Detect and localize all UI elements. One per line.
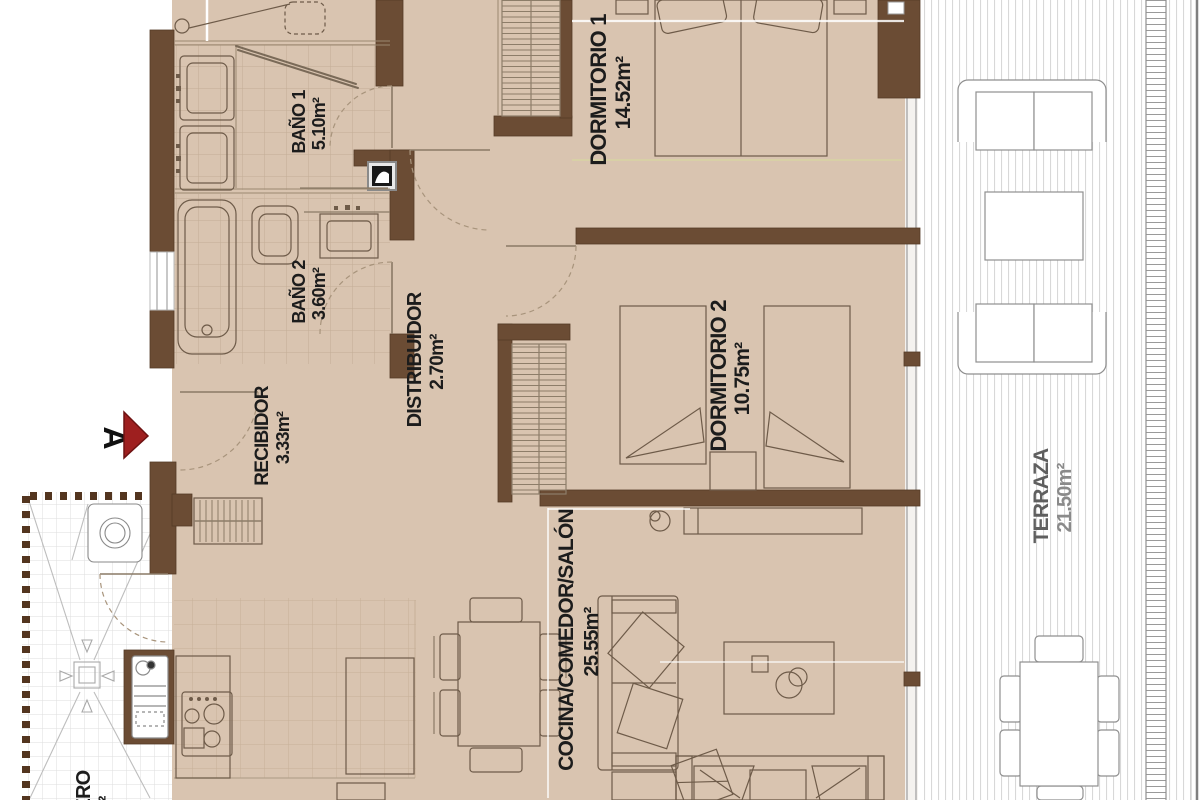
floor-plan-canvas: A BAÑO 1 5.10m² BAÑO 2 3.60m² DORMITORIO… (0, 0, 1200, 800)
window-mullion (904, 352, 920, 366)
terraza-table (985, 192, 1083, 260)
wardrobe1-wall-right (560, 0, 572, 118)
room-area-bano2: 3.60m² (309, 267, 329, 320)
bano1-tiles (174, 44, 390, 190)
room-label-dormitorio1: DORMITORIO 1 (586, 14, 611, 166)
wall-top-stub (376, 0, 403, 86)
room-area-recibidor: 3.33m² (273, 411, 293, 464)
window-left (150, 252, 174, 310)
kitchen-tiles (174, 598, 416, 778)
room-label-distribuidor: DISTRIBUIDOR (404, 291, 426, 427)
room-label-dormitorio2: DORMITORIO 2 (706, 300, 731, 452)
room-label-terraza: TERRAZA (1030, 448, 1053, 543)
wall-dorm1-dorm2 (576, 228, 920, 244)
wall-entry-column (172, 494, 192, 526)
room-label-lavadero: LAVADERO (73, 770, 95, 800)
wardrobe1-wall-bottom (494, 116, 572, 136)
room-area-distribuidor: 2.70m² (427, 334, 448, 390)
room-area-cocina: 25.55m² (581, 606, 603, 676)
wall-top-right-block (878, 0, 920, 98)
wardrobe2-wall-top (498, 324, 570, 340)
room-area-dormitorio1: 14.52m² (612, 56, 635, 129)
room-area-lavadero: 3.63m² (96, 796, 117, 800)
room-area-terraza: 21.50m² (1054, 462, 1076, 532)
wall-left-mid (150, 310, 174, 368)
room-area-bano1: 5.10m² (309, 97, 329, 150)
room-area-dormitorio2: 10.75m² (731, 342, 754, 415)
room-label-bano1: BAÑO 1 (288, 90, 309, 154)
room-label-recibidor: RECIBIDOR (252, 385, 273, 485)
wardrobe-dormitorio2 (512, 344, 566, 494)
section-arrow-icon (124, 412, 148, 458)
wardrobe2-wall-left (498, 324, 512, 502)
boiler-icon (132, 656, 168, 738)
terraza-sofa (958, 304, 1106, 374)
room-label-bano2: BAÑO 2 (288, 260, 309, 324)
room-label-cocina: COCINA/COMEDOR/SALÓN (554, 509, 578, 771)
wall-dorm2-salon (540, 490, 920, 506)
bano2-tiles (174, 194, 390, 364)
wall-left-upper (150, 30, 174, 252)
wardrobe-dormitorio1 (502, 0, 560, 116)
section-marker: A (97, 412, 148, 458)
terraza-sofa (958, 80, 1106, 150)
floor-plan-drawing: A BAÑO 1 5.10m² BAÑO 2 3.60m² DORMITORIO… (0, 0, 1200, 800)
window-mullion (904, 672, 920, 686)
shaft-symbol-icon (368, 162, 396, 190)
washing-machine-icon (88, 504, 142, 562)
